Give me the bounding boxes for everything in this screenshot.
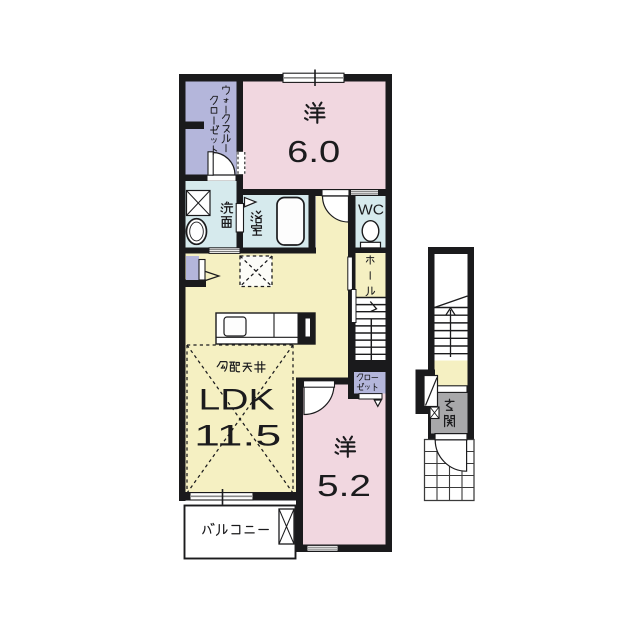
svg-text:WC: WC xyxy=(358,203,384,219)
svg-text:5.2: 5.2 xyxy=(317,468,371,503)
svg-text:6.0: 6.0 xyxy=(287,134,340,169)
svg-text:LDK: LDK xyxy=(199,384,275,417)
svg-text:11.5: 11.5 xyxy=(194,420,281,453)
